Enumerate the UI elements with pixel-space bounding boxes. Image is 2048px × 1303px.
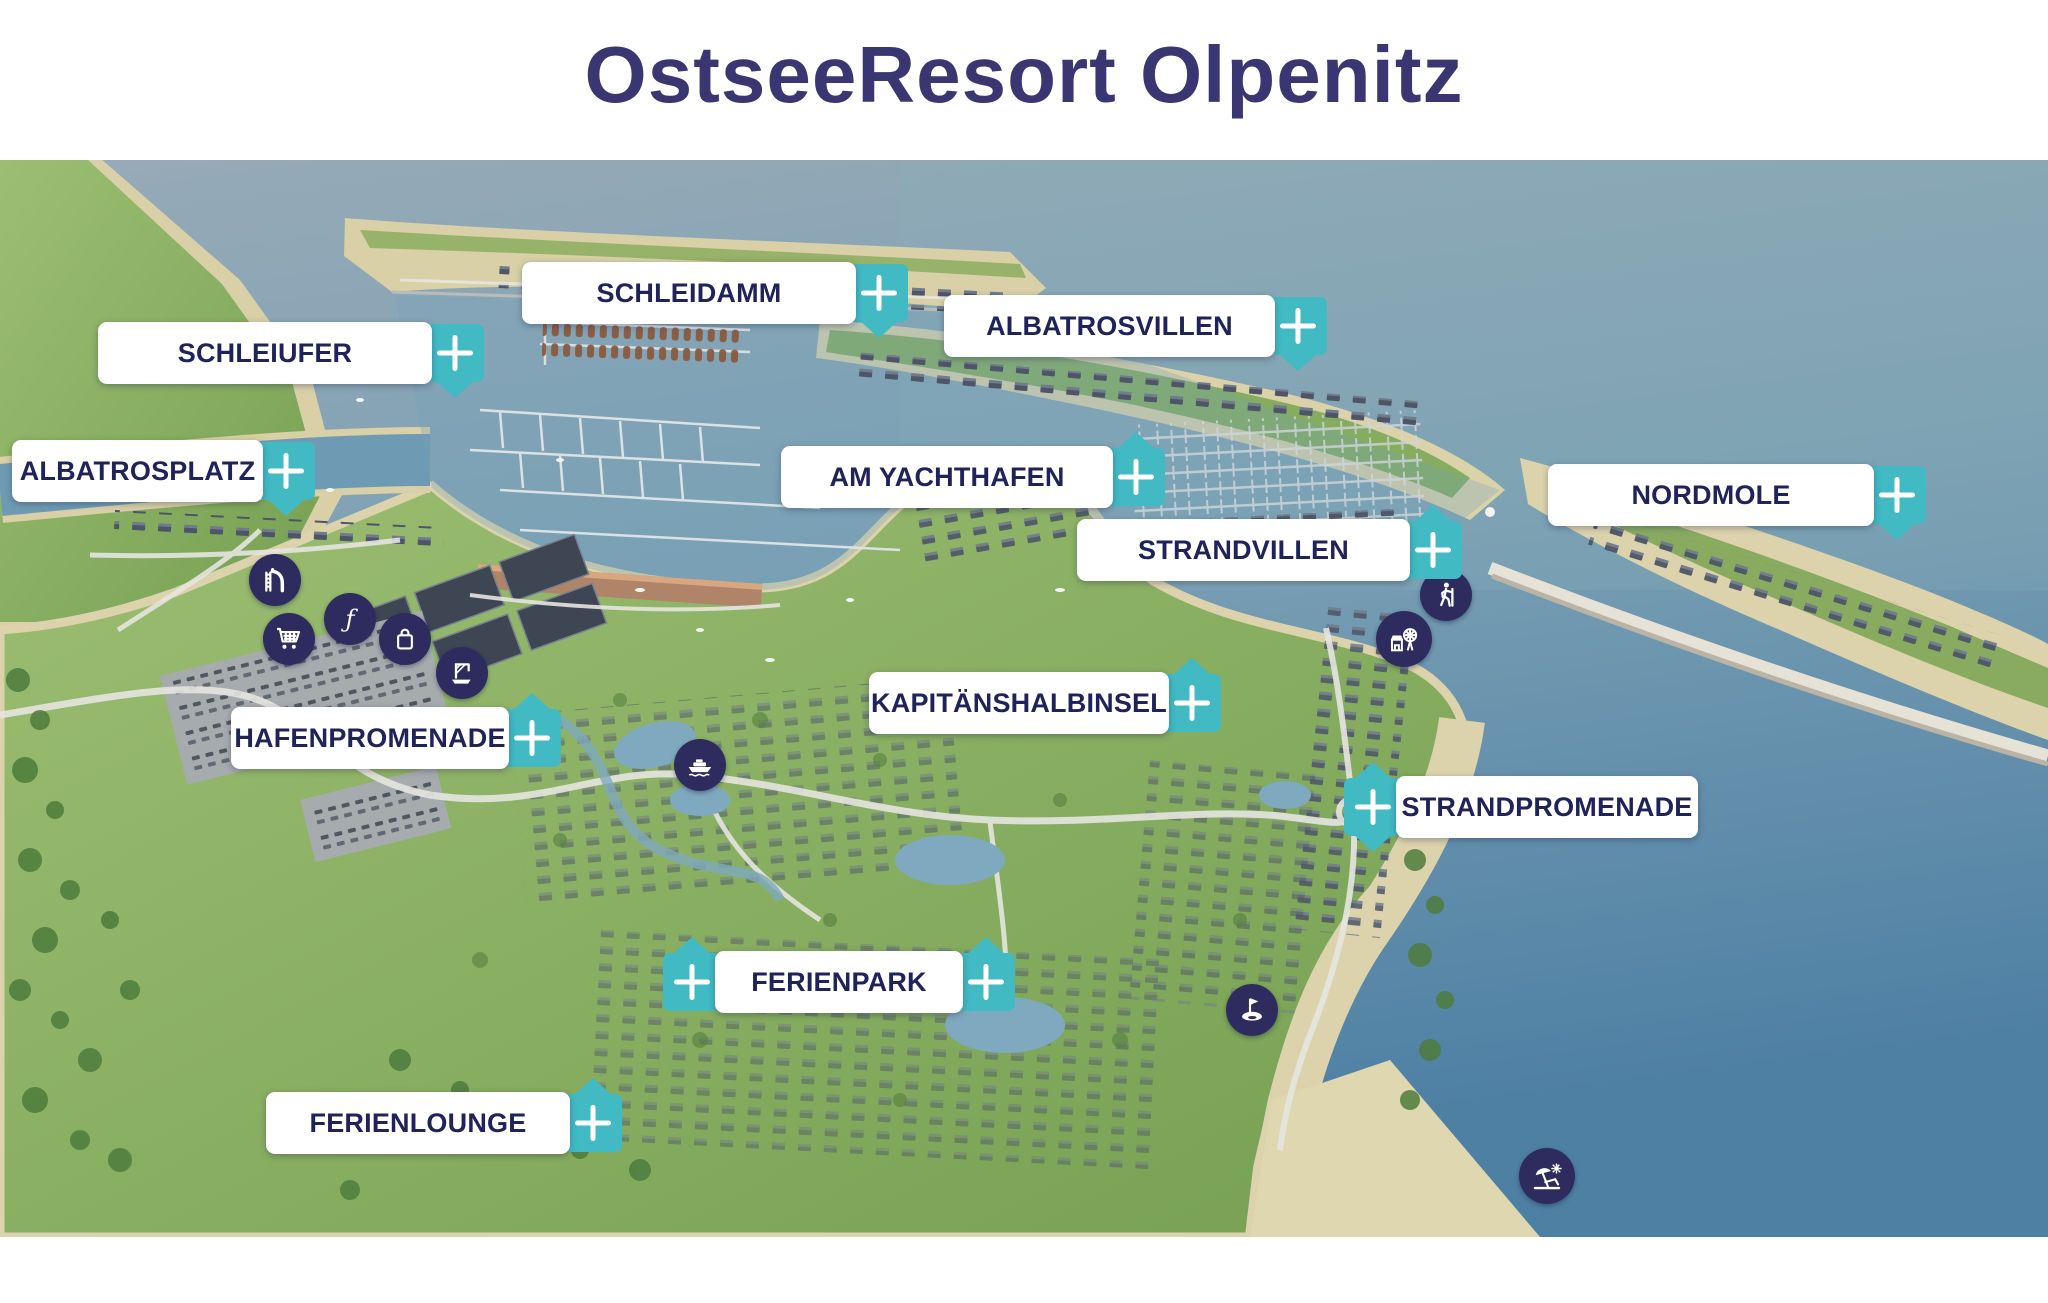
area-marker-am-yachthafen: AM YACHTHAFEN	[781, 446, 1165, 508]
plus-icon	[850, 264, 908, 322]
area-marker-schleiufer: SCHLEIUFER	[98, 322, 484, 384]
area-marker-schleidamm: SCHLEIDAMM	[522, 262, 908, 324]
expand-button-strandpromenade[interactable]	[1344, 778, 1402, 836]
area-label[interactable]: AM YACHTHAFEN	[781, 446, 1113, 508]
plus-icon	[426, 324, 484, 382]
area-label-text: FERIENPARK	[751, 967, 927, 998]
area-label[interactable]: ALBATROSPLATZ	[12, 440, 263, 502]
area-label-text: SCHLEIDAMM	[597, 278, 782, 309]
plus-icon	[564, 1094, 622, 1152]
area-label-text: KAPITÄNSHALBINSEL	[871, 688, 1167, 719]
area-label[interactable]: FERIENLOUNGE	[266, 1092, 570, 1154]
beach-icon[interactable]	[1519, 1148, 1575, 1204]
plus-icon	[257, 442, 315, 500]
area-marker-ferienlounge: FERIENLOUNGE	[266, 1092, 622, 1154]
area-label[interactable]: SCHLEIDAMM	[522, 262, 856, 324]
area-label[interactable]: STRANDVILLEN	[1077, 519, 1410, 581]
shopping-bag-icon[interactable]	[379, 613, 431, 665]
expand-button-ferienpark-east[interactable]	[957, 953, 1015, 1011]
expand-button-nordmole[interactable]	[1868, 466, 1926, 524]
boat-crane-icon[interactable]	[436, 647, 488, 699]
expand-button-schleiufer[interactable]	[426, 324, 484, 382]
area-marker-strandvillen: STRANDVILLEN	[1077, 519, 1462, 581]
area-marker-kapitaenshalbinsel: KAPITÄNSHALBINSEL	[869, 672, 1221, 734]
area-marker-hafenpromenade: HAFENPROMENADE	[231, 707, 561, 769]
area-label[interactable]: HAFENPROMENADE	[231, 707, 509, 769]
plus-icon	[1344, 778, 1402, 836]
area-label[interactable]: ALBATROSVILLEN	[944, 295, 1275, 357]
ferry-icon[interactable]	[674, 739, 726, 791]
area-label[interactable]: KAPITÄNSHALBINSEL	[869, 672, 1169, 734]
area-label-text: ALBATROSPLATZ	[20, 456, 256, 487]
area-label[interactable]: FERIENPARK	[715, 951, 963, 1013]
f-logo-icon[interactable]: ƒ	[324, 593, 376, 645]
expand-button-albatrosvillen[interactable]	[1269, 297, 1327, 355]
area-label-text: STRANDVILLEN	[1138, 535, 1349, 566]
plus-icon	[1107, 448, 1165, 506]
plus-icon	[1868, 466, 1926, 524]
area-label-text: SCHLEIUFER	[178, 338, 353, 369]
golf-icon[interactable]	[1226, 984, 1278, 1036]
expand-button-albatrosplatz[interactable]	[257, 442, 315, 500]
expand-button-ferienlounge[interactable]	[564, 1094, 622, 1152]
area-marker-strandpromenade: STRANDPROMENADE	[1344, 776, 1698, 838]
area-label-text: HAFENPROMENADE	[234, 723, 505, 754]
water-slide-icon[interactable]	[249, 554, 301, 606]
svg-text:ƒ: ƒ	[341, 605, 359, 633]
expand-button-kapitaenshalbinsel[interactable]	[1163, 674, 1221, 732]
plus-icon	[957, 953, 1015, 1011]
plus-icon	[1269, 297, 1327, 355]
beach-market-icon[interactable]	[1376, 611, 1432, 667]
area-label[interactable]: NORDMOLE	[1548, 464, 1874, 526]
area-label[interactable]: SCHLEIUFER	[98, 322, 432, 384]
plus-icon	[1404, 521, 1462, 579]
page-title: OstseeResort Olpenitz	[0, 0, 2048, 150]
resort-map: ƒ	[0, 160, 2048, 1237]
area-marker-nordmole: NORDMOLE	[1548, 464, 1926, 526]
expand-button-schleidamm[interactable]	[850, 264, 908, 322]
expand-button-am-yachthafen[interactable]	[1107, 448, 1165, 506]
area-marker-albatrosplatz: ALBATROSPLATZ	[12, 440, 315, 502]
plus-icon	[1163, 674, 1221, 732]
area-marker-albatrosvillen: ALBATROSVILLEN	[944, 295, 1327, 357]
plus-icon	[503, 709, 561, 767]
expand-button-strandvillen[interactable]	[1404, 521, 1462, 579]
area-label[interactable]: STRANDPROMENADE	[1396, 776, 1698, 838]
shopping-cart-icon[interactable]	[263, 613, 315, 665]
area-label-text: STRANDPROMENADE	[1401, 792, 1692, 823]
expand-button-ferienpark-west[interactable]	[663, 953, 721, 1011]
area-label-text: ALBATROSVILLEN	[986, 311, 1233, 342]
area-label-text: AM YACHTHAFEN	[829, 462, 1064, 493]
area-label-text: FERIENLOUNGE	[310, 1108, 527, 1139]
area-label-text: NORDMOLE	[1631, 480, 1790, 511]
plus-icon	[663, 953, 721, 1011]
expand-button-hafenpromenade[interactable]	[503, 709, 561, 767]
area-marker-ferienpark: FERIENPARK	[663, 951, 1015, 1013]
page: OstseeResort Olpenitz	[0, 0, 2048, 1303]
